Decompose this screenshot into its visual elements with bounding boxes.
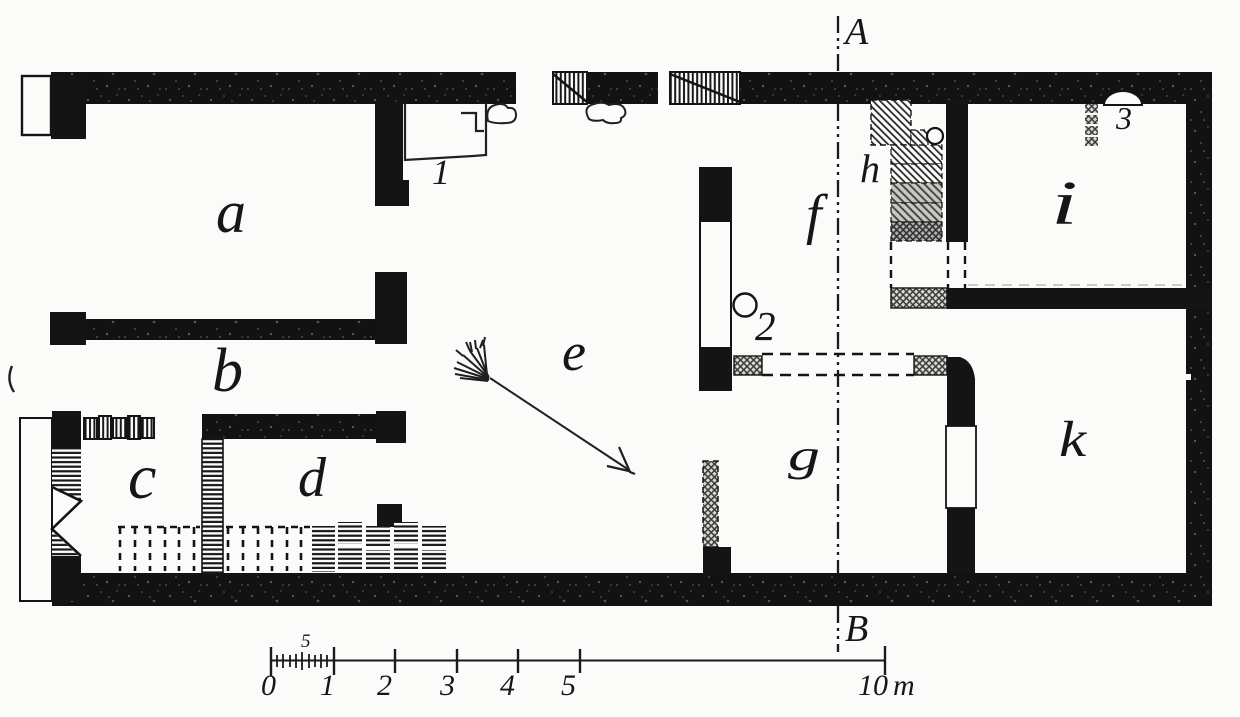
svg-text:5: 5 — [561, 669, 576, 702]
svg-text:2: 2 — [377, 669, 392, 702]
svg-text:10: 10 — [858, 669, 888, 702]
svg-text:i: i — [1051, 170, 1078, 238]
svg-text:c: c — [128, 441, 156, 512]
svg-text:A: A — [842, 11, 869, 53]
svg-text:5: 5 — [301, 631, 311, 652]
svg-text:4: 4 — [500, 669, 515, 702]
svg-text:1: 1 — [432, 152, 450, 192]
svg-text:g: g — [788, 431, 820, 480]
svg-text:2: 2 — [755, 303, 776, 349]
svg-text:B: B — [845, 608, 868, 650]
svg-text:3: 3 — [1115, 100, 1132, 136]
svg-text:e: e — [562, 322, 586, 382]
svg-text:k: k — [1059, 412, 1087, 468]
svg-text:h: h — [860, 146, 880, 191]
svg-text:1: 1 — [320, 669, 335, 702]
svg-text:0: 0 — [261, 669, 276, 702]
svg-text:a: a — [216, 179, 246, 245]
svg-text:3: 3 — [439, 669, 455, 702]
svg-text:m: m — [893, 669, 915, 702]
svg-text:b: b — [212, 337, 243, 405]
svg-text:d: d — [298, 447, 327, 509]
